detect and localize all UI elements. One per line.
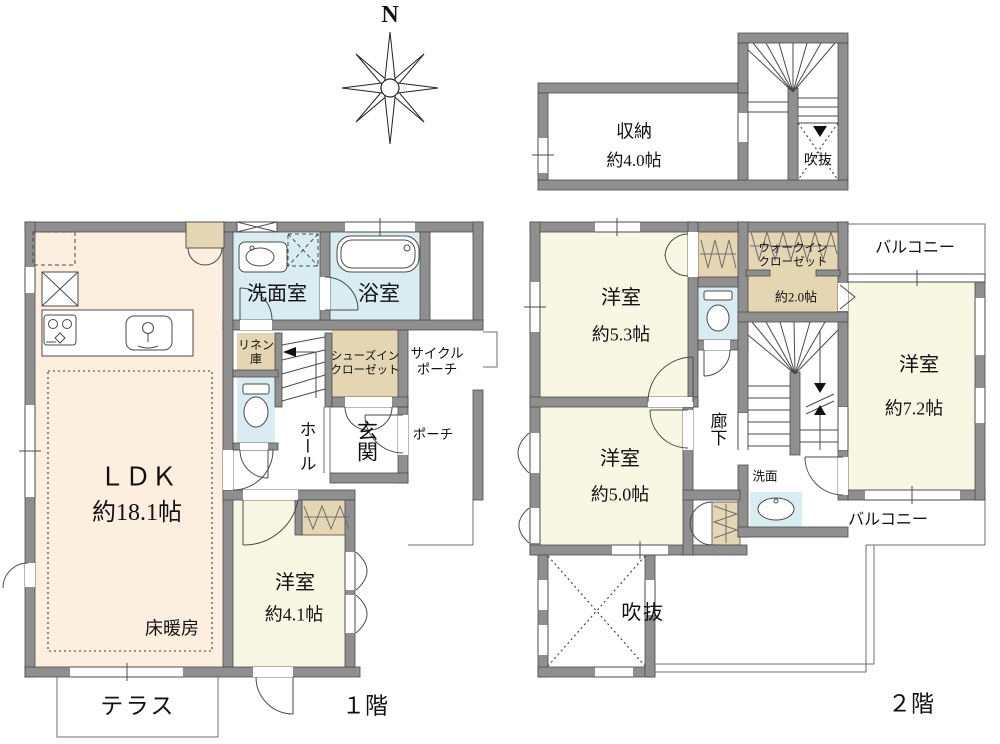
room-label-balcony-south: バルコニー xyxy=(848,512,928,531)
down-arrow-icon xyxy=(813,126,827,137)
washbasin-icon-2f xyxy=(758,498,794,520)
stairs-down-arrow-icon xyxy=(814,383,826,393)
room-label-washroom: 洗面室 xyxy=(247,283,307,307)
room-label-entrance: 玄関 xyxy=(356,420,377,462)
room-size-bedroom-50: 約5.0帖 xyxy=(591,484,650,505)
stove-icon xyxy=(44,315,76,345)
room-label-hall: ホール xyxy=(298,421,315,472)
floor1-stairs xyxy=(282,337,325,401)
room-label-linen-closet: リネン 庫 xyxy=(238,338,274,366)
compass-icon xyxy=(342,32,438,144)
room-label-bedroom-50: 洋室 xyxy=(600,448,640,472)
floor2-upper-block xyxy=(532,33,848,190)
floor1-title: １階 xyxy=(342,692,388,719)
room-label-bedroom-41: 洋室 xyxy=(275,572,315,596)
floor-heating-label: 床暖房 xyxy=(145,618,199,639)
room-label-bathroom: 浴室 xyxy=(358,282,400,307)
lower-roof-outline xyxy=(655,545,874,672)
floor2-upper-walls xyxy=(538,33,848,190)
room-label-bedroom-53: 洋室 xyxy=(601,287,641,311)
room-label-wic: ウォークイン クローゼット xyxy=(759,242,828,269)
room-size-ldk: 約18.1帖 xyxy=(92,499,182,527)
room-label-balcony-north: バルコニー xyxy=(875,240,955,259)
room-label-void-upper: 吹抜 xyxy=(804,154,832,171)
kitchen-cabinet-icon xyxy=(42,272,78,306)
room-label-bedroom-72: 洋室 xyxy=(899,354,939,378)
bathtub-icon xyxy=(337,236,419,272)
compass-north-label: N xyxy=(381,1,398,29)
room-label-washbasin: 洗面 xyxy=(751,470,778,485)
room-label-storage: 収納 xyxy=(616,121,652,142)
room-size-bedroom-53: 約5.3帖 xyxy=(592,324,651,345)
toilet-icon-2f xyxy=(704,291,732,331)
floorplan-page: N ＬＤＫ 約18.1帖 床暖房 洗面室 浴室 リネン 庫 ホール シューズイン… xyxy=(0,0,1000,744)
void-upper-area xyxy=(798,123,838,180)
room-label-shoes-closet: シューズイン クローゼット xyxy=(331,350,400,377)
room-label-corridor: 廊下 xyxy=(709,412,726,446)
room-label-cycle-porch: サイクル ポーチ xyxy=(410,346,463,378)
room-size-storage: 約4.0帖 xyxy=(606,151,661,171)
room-size-bedroom-41: 約4.1帖 xyxy=(265,604,324,625)
room-size-bedroom-72: 約7.2帖 xyxy=(885,398,944,419)
floor2-title: ２階 xyxy=(888,690,934,717)
vanity-sink-icon xyxy=(239,242,287,272)
room-label-porch: ポーチ xyxy=(413,427,454,443)
floor2-plan xyxy=(518,218,985,677)
room-size-wic: 約2.0帖 xyxy=(775,289,817,304)
room-label-void-main: 吹抜 xyxy=(621,602,664,626)
kitchen-sink-icon xyxy=(126,316,172,350)
room-label-terrace: テラス xyxy=(100,692,175,719)
toilet-icon xyxy=(243,384,269,427)
room-label-ldk: ＬＤＫ xyxy=(99,463,177,494)
